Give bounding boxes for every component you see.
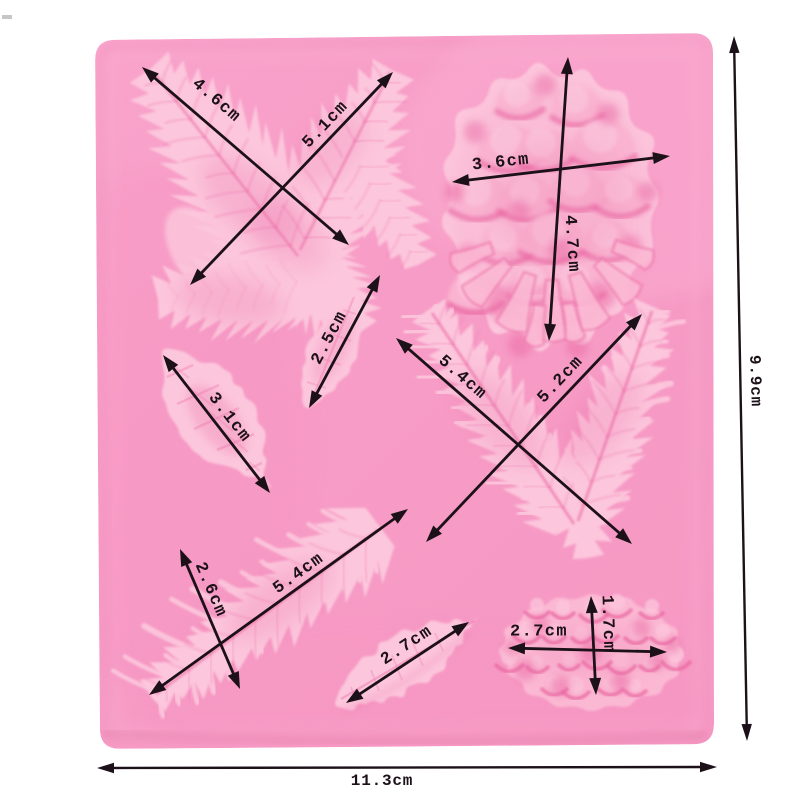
svg-text:4.7cm: 4.7cm (559, 214, 582, 273)
svg-text:11.3cm: 11.3cm (351, 772, 413, 790)
svg-text:9.9cm: 9.9cm (745, 355, 765, 408)
svg-text:2.7cm: 2.7cm (510, 623, 568, 642)
svg-text:1.7cm: 1.7cm (596, 595, 617, 654)
